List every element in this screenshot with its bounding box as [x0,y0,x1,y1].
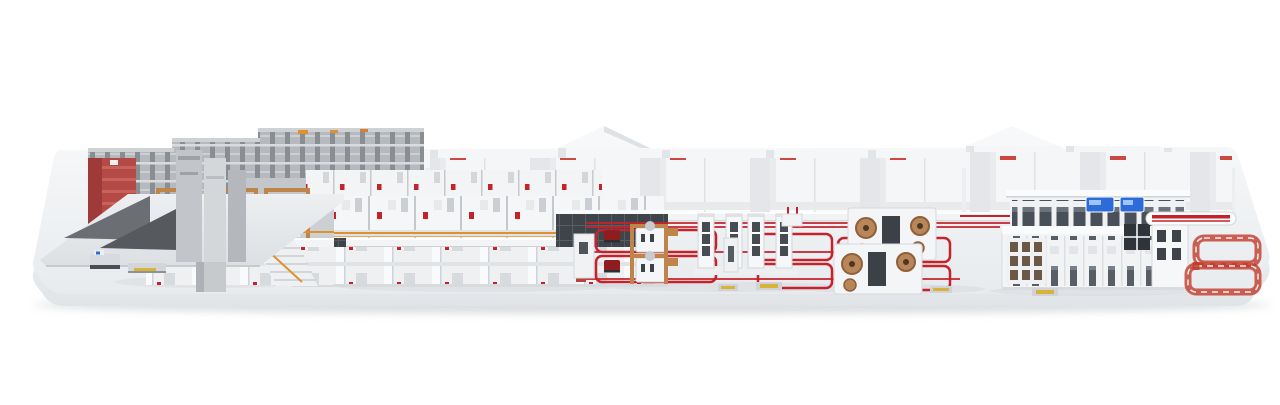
striped-rail-conveyor [1146,212,1236,225]
factory-scene [0,0,1280,405]
pallet-truck [128,263,166,273]
agv-status-light [96,252,100,255]
reel-winding-stations [834,208,936,294]
robot-arm [645,221,655,231]
dark-window-block [1124,224,1150,250]
service-cart [1032,288,1058,296]
production-line-render [0,0,1280,405]
shuttle-vehicle [604,230,620,241]
right-machine [1002,190,1190,296]
shuttle-vehicle [604,260,620,271]
amber-window-grid [1006,238,1046,284]
end-cabinet [1152,222,1188,288]
rack-orange-accent [298,130,308,134]
robot-arm [645,251,655,261]
